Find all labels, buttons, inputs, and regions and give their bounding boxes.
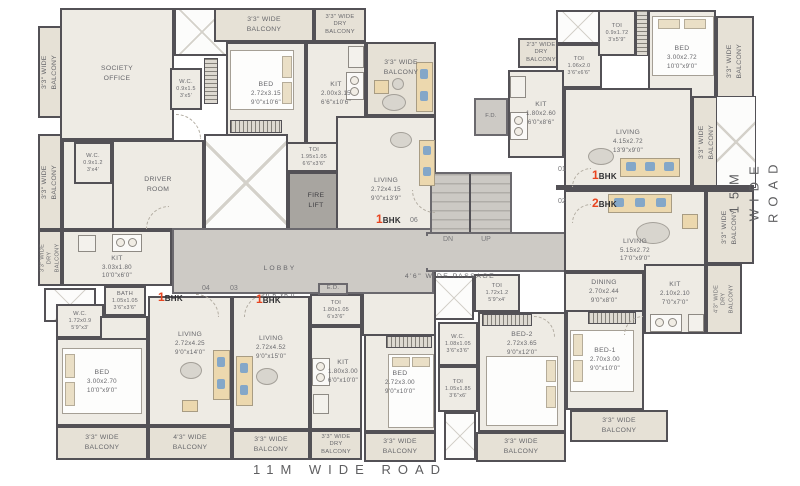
room-dims-ft: 7'0"x7'0" (662, 299, 688, 308)
room-dims-ft: 6'0"x10'0" (328, 377, 358, 386)
unit-tag-06: 1BHK (376, 210, 401, 228)
room-dims-ft: 17'0"x9'0" (620, 255, 650, 264)
burner-icon (316, 373, 325, 382)
room-toi-01b: TOI0.9x1.723'x5'9" (598, 10, 636, 56)
balcony-label: 3'3" WIDE BALCONY (384, 58, 419, 78)
room-name: BATH (117, 291, 133, 299)
room-name: KIT (111, 254, 122, 264)
room-dims-m: 2.72x4.52 (256, 344, 286, 353)
balcony-label: 3'3" WIDE BALCONY (254, 435, 289, 455)
balcony-top-center-label: 3'3" WIDE BALCONY (216, 10, 312, 40)
cushion-icon (423, 146, 431, 155)
balcony-label: 3'3" WIDE BALCONY (697, 125, 717, 160)
dry-balcony-03: 3'3" WIDE DRY BALCONY (310, 430, 362, 460)
balcony-bed-04: 3'3" WIDE BALCONY (56, 426, 148, 460)
burner-icon (350, 87, 359, 96)
floor-plan: 3'3" WIDE BALCONY 3'3" WIDE BALCONY 3'3"… (0, 0, 800, 486)
cushion-icon (217, 357, 225, 367)
pillow-icon (684, 19, 706, 29)
burner-icon (116, 238, 125, 247)
room-name: W.C. (179, 79, 193, 87)
balcony-left-mid-label: 3'3" WIDE BALCONY (40, 136, 60, 228)
passage-label: 4'6" WIDE PASSAGE (384, 247, 516, 283)
cushion-icon (626, 162, 636, 171)
wardrobe-icon (230, 120, 282, 133)
room-dims-m: 0.9x1.2 (83, 160, 102, 167)
room-dims-m: 2.72x4.15 (371, 186, 401, 195)
room-dining-02: DINING2.70x2.449'0"x8'0" (564, 272, 644, 312)
room-name: LIVING (259, 334, 283, 344)
room-dims-m: 1.80x1.05 (323, 307, 349, 314)
cushion-icon (240, 385, 248, 395)
stove-icon (510, 112, 528, 140)
sink-icon (78, 235, 96, 252)
room-name: LIVING (178, 330, 202, 340)
pillow-icon (546, 386, 556, 408)
armchair-icon (682, 214, 698, 229)
room-name: TOI (612, 23, 622, 31)
cushion-icon (240, 363, 248, 373)
room-name: KIT (337, 358, 348, 368)
balcony-label: 3'3" WIDE BALCONY (602, 416, 637, 436)
room-dims-m: 1.80x3.00 (328, 368, 358, 377)
unit-type-number: 1 (256, 292, 263, 306)
room-name: F.D. (485, 113, 497, 121)
room-toi-top: TOI1.95x1.056'6"x3'6" (284, 142, 344, 172)
balcony-label: 2'3" WIDE DRY BALCONY (526, 42, 556, 65)
dining-02-label: DINING2.70x2.449'0"x8'0" (566, 274, 642, 310)
cushion-icon (420, 91, 428, 101)
door-number-03: 03 (230, 285, 238, 292)
room-dims-m: 3.03x1.80 (102, 264, 132, 273)
fire-lift-label: FIRE LIFT (290, 174, 342, 228)
room-dims-m: 1.72x1.2 (486, 290, 509, 297)
room-dims-m: 1.72x0.9 (69, 318, 92, 325)
unit-tag-03: 1BHK (256, 290, 281, 308)
cushion-icon (664, 162, 674, 171)
dry-balcony-top-label: 3'3" WIDE DRY BALCONY (316, 10, 364, 40)
room-wc-left: W.C.1.72x0.95'9"x3' (56, 304, 104, 338)
balcony-left-top-label: 3'3" WIDE BALCONY (40, 28, 60, 116)
sofa-icon (620, 158, 680, 177)
room-wc-02: W.C.1.08x1.053'6"x3'6" (438, 322, 478, 366)
room-dims-m: 2.72x4.25 (175, 340, 205, 349)
room-name: TOI (574, 56, 584, 64)
room-dims-ft: 9'0"x8'0" (591, 297, 617, 306)
balcony-living-04: 4'3" WIDE BALCONY (148, 426, 232, 460)
door-arc (176, 114, 201, 139)
pillow-icon (282, 82, 292, 104)
balcony-label: 3'3" WIDE DRY BALCONY (39, 244, 61, 273)
sink-icon (348, 46, 364, 68)
pillow-icon (546, 360, 556, 382)
fire-duct: F.D. (474, 98, 508, 136)
pillow-icon (573, 334, 583, 356)
wc-left-label: W.C.1.72x0.95'9"x3' (58, 306, 102, 336)
pillow-icon (412, 357, 430, 367)
pillow-icon (65, 382, 75, 406)
passage-name: 4'6" WIDE PASSAGE (405, 273, 495, 280)
balcony-living-03-label: 3'3" WIDE BALCONY (234, 432, 308, 458)
cushion-icon (420, 69, 428, 79)
room-dims-m: 2.70x2.44 (589, 288, 619, 297)
road-label-right-text: 15M WIDE ROAD (725, 157, 784, 223)
pillow-icon (392, 357, 410, 367)
unit-tag-02: 2BHK (592, 194, 617, 212)
electrical-duct-label: E.D. (320, 285, 346, 293)
sofa-icon (416, 62, 433, 112)
room-dims-ft: 6'6"x3'6" (303, 161, 326, 168)
stove-icon (312, 358, 330, 386)
room-dims-m: 5.15x2.72 (620, 247, 650, 256)
room-dims-m: 4.15x2.72 (613, 138, 643, 147)
room-name: LIVING (374, 176, 398, 186)
room-dims-m: 0.9x1.72 (606, 30, 629, 37)
unit-type-bhk: BHK (165, 294, 183, 303)
unit-type-bhk: BHK (599, 172, 617, 181)
fire-duct-label: F.D. (476, 100, 506, 134)
burner-icon (350, 76, 359, 85)
unit-tag-01: 1BHK (592, 166, 617, 184)
room-wc-driver: W.C.0.9x1.23'x4' (74, 142, 112, 184)
unit-type-number: 2 (592, 196, 599, 210)
duct-shaft-bottom (444, 412, 476, 460)
room-name: DRIVER ROOM (144, 175, 171, 195)
room-dims-ft: 9'0"x15'0" (256, 353, 286, 362)
table-icon (392, 78, 404, 90)
unit-type-number: 1 (376, 212, 383, 226)
road-label-right: 15M WIDE ROAD (736, 70, 772, 310)
cushion-icon (645, 162, 655, 171)
room-name: SOCIETY OFFICE (101, 64, 133, 84)
sink-icon (313, 394, 329, 414)
room-dims-m: 0.9x1.5 (176, 86, 195, 93)
cushion-icon (423, 167, 431, 176)
stove-icon (346, 72, 364, 100)
door-number-06: 06 (410, 217, 418, 224)
pillow-icon (65, 354, 75, 378)
burner-icon (514, 127, 523, 136)
balcony-bed-04-label: 3'3" WIDE BALCONY (58, 428, 146, 458)
room-dims-ft: 6'0"x8'6" (528, 119, 554, 128)
room-dims-ft: 3'x5'9" (608, 37, 626, 44)
room-dims-m: 2.72x3.65 (507, 340, 537, 349)
room-dims-ft: 13'9"x9'0" (613, 147, 643, 156)
room-name: TOI (453, 379, 463, 387)
wardrobe-icon (482, 314, 532, 326)
room-dims-ft: 3'6"x3'6" (447, 348, 470, 355)
wc-society-label: W.C.0.9x1.53'x5' (172, 70, 200, 108)
sink-icon (688, 314, 704, 332)
dry-balcony-03-label: 3'3" WIDE DRY BALCONY (312, 432, 360, 458)
room-dims-m: 1.80x2.60 (526, 110, 556, 119)
room-dims-ft: 9'0"x14'0" (175, 349, 205, 358)
balcony-bed-2-label: 3'3" WIDE BALCONY (478, 434, 564, 460)
room-name: FIRE LIFT (308, 191, 325, 211)
lift-shaft-top-right (556, 10, 600, 44)
balcony-top-center: 3'3" WIDE BALCONY (214, 8, 314, 42)
room-name: E.D. (327, 285, 339, 293)
pillow-icon (282, 56, 292, 78)
balcony-label: 4'3" WIDE BALCONY (173, 433, 208, 453)
stairs-dn-label: DN (436, 236, 460, 243)
table-icon (256, 368, 278, 385)
burner-icon (128, 238, 137, 247)
cushion-icon (635, 198, 645, 207)
sofa-icon (419, 140, 435, 186)
balcony-label: 3'3" WIDE DRY BALCONY (321, 434, 351, 457)
toi-02-label: TOI1.05x1.853'6"x6' (440, 368, 476, 410)
table-icon (588, 148, 614, 165)
room-name: DINING (591, 278, 617, 288)
door-number-04: 04 (202, 285, 210, 292)
room-dims-m: 1.05x1.05 (112, 298, 138, 305)
sofa-icon (213, 350, 230, 400)
balcony-left-mid: 3'3" WIDE BALCONY (38, 134, 62, 230)
balcony-label: 3'3" WIDE BALCONY (40, 165, 60, 200)
burner-icon (668, 318, 677, 327)
room-name: W.C. (451, 334, 465, 342)
cushion-icon (656, 198, 666, 207)
unit-type-number: 1 (592, 168, 599, 182)
door-number-02: 02 (558, 198, 566, 205)
toi-01b-label: TOI0.9x1.723'x5'9" (600, 12, 634, 54)
lobby-name: LOBBY (238, 264, 322, 274)
room-dims-ft: 3'x4' (87, 167, 99, 174)
burner-icon (316, 362, 325, 371)
room-dims-ft: 6'x3'6" (327, 314, 345, 321)
toi-01a-label: TOI1.06x2.03'6"x6'6" (558, 46, 600, 86)
stairs-up-label: UP (474, 236, 498, 243)
table-icon (180, 362, 202, 379)
wc-02-label: W.C.1.08x1.053'6"x3'6" (440, 324, 476, 364)
staircase (430, 172, 512, 234)
room-dims-m: 2.10x2.10 (660, 290, 690, 299)
room-name: TOI (309, 147, 319, 155)
stair-hatch-top-left (204, 58, 218, 104)
room-dims-ft: 3'6"x6'6" (568, 70, 591, 77)
room-dims-ft: 9'0"x13'9" (371, 195, 401, 204)
balcony-bed-2: 3'3" WIDE BALCONY (476, 432, 566, 462)
room-dims-ft: 10'0"x6'0" (102, 272, 132, 281)
wardrobe-icon (386, 336, 432, 348)
pillow-icon (658, 19, 680, 29)
room-dims-m: 1.95x1.05 (301, 154, 327, 161)
zone-unit04-foyer (100, 316, 148, 340)
room-name: LIVING (616, 128, 640, 138)
sink-icon (510, 76, 526, 98)
table-icon (390, 132, 412, 148)
burner-icon (514, 116, 523, 125)
room-bath-left: BATH1.05x1.053'6"x3'6" (104, 286, 146, 316)
road-label-bottom: 11M WIDE ROAD (180, 462, 520, 477)
room-name: W.C. (73, 311, 87, 319)
table-icon (636, 222, 670, 244)
balcony-label: 3'3" WIDE BALCONY (247, 15, 282, 35)
room-name: W.C. (86, 153, 100, 161)
balcony-label: 3'3" WIDE BALCONY (85, 433, 120, 453)
unit-type-bhk: BHK (599, 200, 617, 209)
wc-driver-label: W.C.0.9x1.23'x4' (76, 144, 110, 182)
room-dims-ft: 5'9"x4' (488, 297, 506, 304)
balcony-bed-06-label: 3'3" WIDE BALCONY (366, 434, 434, 460)
door-number-01: 01 (558, 166, 566, 173)
balcony-label: 3'3" WIDE BALCONY (504, 437, 539, 457)
balcony-label: 3'3" WIDE BALCONY (40, 55, 60, 90)
room-dims-ft: 3'6"x3'6" (114, 305, 137, 312)
room-dims-m: 1.05x1.85 (445, 386, 471, 393)
unit-type-number: 1 (158, 290, 165, 304)
room-dims-m: 1.08x1.05 (445, 341, 471, 348)
room-dims-ft: 5'9"x3' (71, 325, 89, 332)
dry-balcony-left: 3'3" WIDE DRY BALCONY (38, 230, 62, 286)
room-name: TOI (331, 300, 341, 308)
society-office-label: SOCIETY OFFICE (62, 10, 172, 138)
room-dims-m: 1.06x2.0 (568, 63, 591, 70)
room-name: KIT (535, 100, 546, 110)
unit-type-bhk: BHK (383, 216, 401, 225)
room-name: BED-2 (511, 330, 533, 340)
sofa-icon (608, 194, 672, 213)
pillow-icon (573, 360, 583, 382)
balcony-bed-1-label: 3'3" WIDE BALCONY (572, 412, 666, 440)
stair-divider (469, 174, 471, 232)
armchair-icon (182, 400, 198, 412)
dry-balcony-top: 3'3" WIDE DRY BALCONY (314, 8, 366, 42)
room-name: KIT (669, 280, 680, 290)
cushion-icon (217, 379, 225, 389)
room-name: KIT (330, 80, 341, 90)
room-dims-ft: 6'6"x10'6" (321, 99, 351, 108)
room-dims-ft: 3'6"x6' (449, 393, 467, 400)
stove-icon (112, 234, 142, 252)
stair-hatch-top-right (636, 10, 648, 56)
balcony-bed-1: 3'3" WIDE BALCONY (570, 410, 668, 442)
dry-balcony-left-label: 3'3" WIDE DRY BALCONY (40, 232, 60, 284)
balcony-label: 4'3" WIDE DRY BALCONY (713, 285, 735, 314)
lift-shaft-central (204, 134, 288, 232)
electrical-duct: E.D. (318, 283, 348, 295)
balcony-label: 3'3" WIDE DRY BALCONY (325, 14, 355, 37)
room-toi-02: TOI1.05x1.853'6"x6' (438, 366, 478, 412)
room-name: TOI (492, 283, 502, 291)
sofa-icon (236, 356, 253, 406)
balcony-living-03: 3'3" WIDE BALCONY (232, 430, 310, 460)
room-dims-ft: 3'x5' (180, 93, 192, 100)
burner-icon (655, 318, 664, 327)
balcony-bed-06: 3'3" WIDE BALCONY (364, 432, 436, 462)
toi-top-label: TOI1.95x1.056'6"x3'6" (286, 144, 342, 170)
balcony-left-top: 3'3" WIDE BALCONY (38, 26, 62, 118)
table-icon (382, 94, 406, 111)
bath-left-label: BATH1.05x1.053'6"x3'6" (106, 288, 144, 314)
balcony-label: 3'3" WIDE BALCONY (383, 437, 418, 457)
balcony-living-04-label: 4'3" WIDE BALCONY (150, 428, 230, 458)
unit-type-bhk: BHK (263, 296, 281, 305)
room-wc-society: W.C.0.9x1.53'x5' (170, 68, 202, 110)
armchair-icon (374, 80, 389, 94)
room-society-office: SOCIETY OFFICE (60, 8, 174, 140)
stove-icon (650, 314, 682, 332)
unit-tag-04: 1BHK (158, 288, 183, 306)
